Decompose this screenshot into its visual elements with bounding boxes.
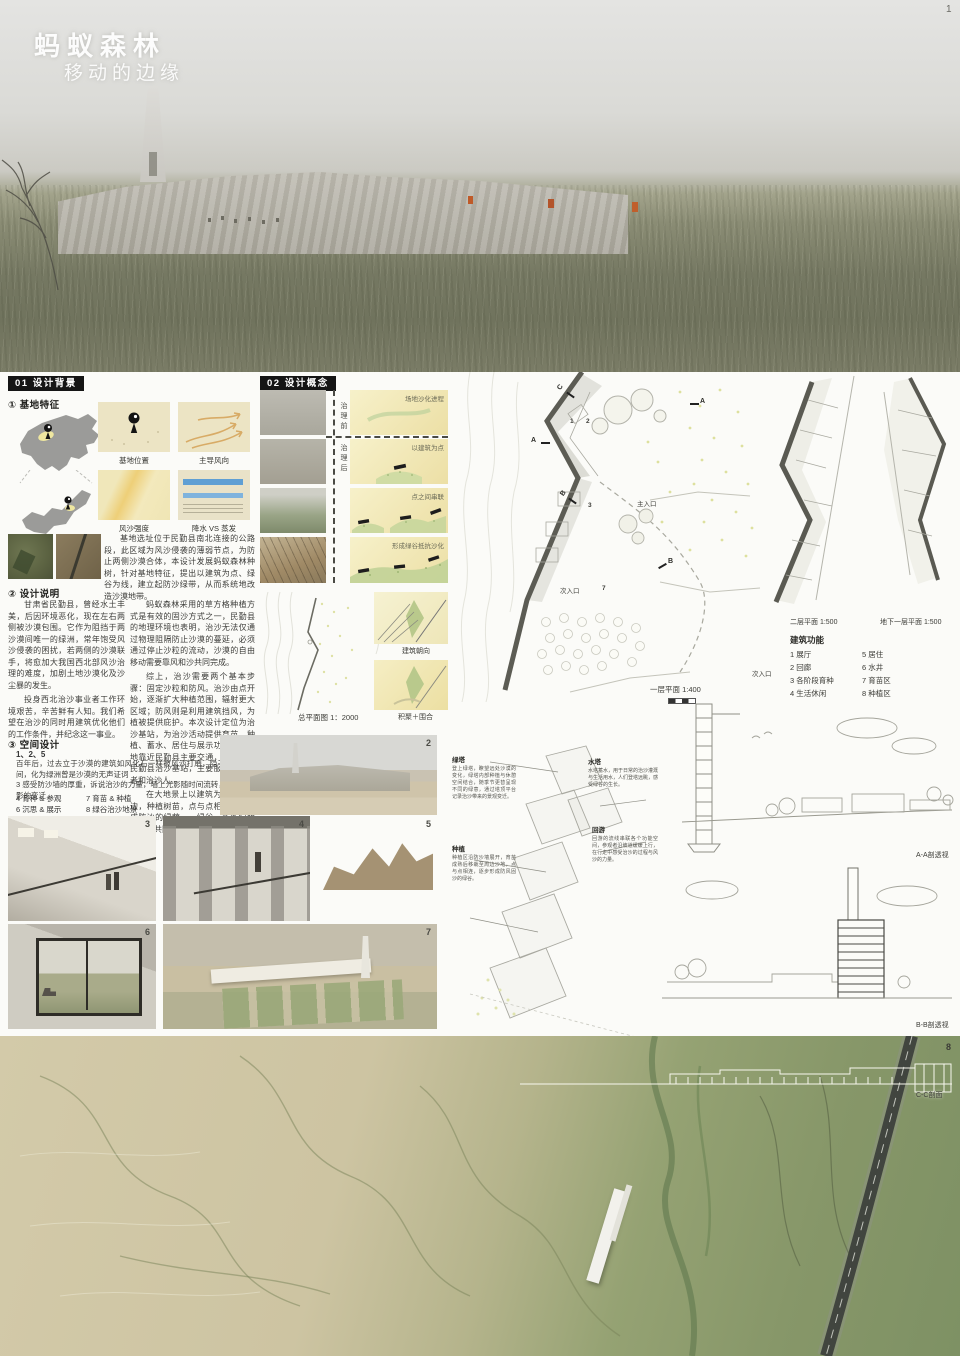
basement-caption: 地下一层平面 1:500 — [880, 617, 941, 627]
thumb-precip-evap — [178, 470, 250, 520]
chart-gridlines — [183, 504, 243, 516]
satellite-image — [8, 534, 53, 579]
orientation-diagram — [374, 592, 448, 644]
green-plots — [222, 979, 404, 1028]
china-map — [8, 408, 102, 476]
render-photo-3: 3 — [8, 816, 156, 921]
design-notes-left: 甘肃省民勤县，曾经水土丰美，后因环境恶化，现在左右两侧被沙漠包围。它作为阻挡于两… — [8, 599, 125, 743]
section-cut-mark — [541, 442, 550, 444]
section-marker-b2: B — [668, 558, 673, 565]
chart-bar-blue — [183, 493, 243, 498]
site-intro-paragraph: 基地选址位于民勤县南北连接的公路段，此区域为风沙侵袭的薄弱节点，为防止两侧沙漠合… — [104, 533, 255, 602]
notes-paragraph: 投身西北治沙事业者工作环境艰苦，辛苦鲜有人知。我们希望在治沙的同时用建筑优化他们… — [8, 694, 125, 740]
space-item: 8 绿谷治沙地景 — [86, 804, 137, 815]
page-number: 1 — [946, 4, 952, 15]
dune-ridges — [260, 537, 326, 583]
notes-paragraph: 蚂蚁森林采用的草方格种植方式是有效的固沙方式之一，民勤县的地理环境也表明，治沙无… — [130, 599, 255, 668]
photo-number: 7 — [426, 927, 431, 937]
render-photo-2: 2 — [220, 735, 437, 815]
function-item: 7 育苗区 — [862, 675, 891, 686]
enclosure-diagram — [374, 660, 448, 710]
axon-note-green-tower: 绿塔 登上绿塔，瞭望远处沙漠的变化，绿塔内部种植与休憩空间结合，随季节更替呈现不… — [452, 754, 516, 801]
concept-diagram-1: 场地沙化进程 — [350, 390, 448, 435]
master-plan-1-2000 — [260, 592, 390, 714]
before-after-divider — [333, 390, 335, 583]
section-header-02: 02 设计概念 — [260, 376, 336, 391]
concept-diagram-2: 以建筑为点 — [350, 439, 448, 484]
thumb-sand-intensity — [98, 470, 170, 520]
oasis-patch — [13, 550, 36, 575]
section-aa-label: A-A剖透视 — [916, 850, 949, 860]
axon-note-title: 种植 — [452, 843, 516, 853]
master-plan-caption: 总平面图 1：2000 — [298, 712, 358, 723]
photo-number: 2 — [426, 738, 431, 748]
roof-object — [468, 196, 473, 204]
space-item: 4 育种 & 参观 — [16, 793, 61, 804]
axon-note-text: 回游的流线串联各个功能空间，参观者沿坡道缓缓上行，在行走中感受治沙的过程与风沙的… — [592, 836, 658, 864]
section-header-01: 01 设计背景 — [8, 376, 84, 391]
enclosure-caption: 积聚＋围合 — [398, 712, 433, 722]
satellite-image — [56, 534, 101, 579]
aerial-tower — [361, 936, 370, 978]
presentation-board: 蚂蚁森林 移动的边缘 1 01 设计背景 ① 基地特征 — [0, 0, 960, 1356]
thumb-site-location — [98, 402, 170, 452]
building-window — [248, 217, 251, 221]
function-item: 1 展厅 — [790, 649, 811, 660]
thumb-wind-direction — [178, 402, 250, 452]
axon-note-title: 回游 — [592, 824, 658, 834]
diagram-caption: 点之间串联 — [412, 491, 445, 501]
building-window — [208, 218, 211, 222]
section-bb-label: B-B剖透视 — [916, 1020, 949, 1030]
first-floor-plan — [450, 372, 770, 702]
gallery-railing — [8, 852, 156, 897]
window-mullion — [86, 938, 88, 1010]
concept-diagram-4: 形成绿谷抵抗沙化 — [350, 537, 448, 583]
section-cut-mark — [690, 403, 699, 405]
axon-note-text: 种植区沿防沙墙展开，育苗成熟后移栽至周边沙地，点与点相连，逐步形成防风固沙的绿谷… — [452, 855, 516, 883]
photo-number: 5 — [426, 819, 431, 829]
axon-note-text: 登上绿塔，瞭望远处沙漠的变化，绿塔内部种植与休憩空间结合，随季节更替呈现不同的绿… — [452, 766, 516, 801]
roof-object — [632, 202, 638, 212]
building-window — [221, 216, 224, 220]
space-item: 7 育苗 & 种植 — [86, 793, 131, 804]
photo-number: 6 — [145, 927, 150, 937]
before-label: 治理前 — [338, 402, 348, 432]
photo-number: 8 — [946, 1042, 951, 1052]
plan-room-number: 3 — [588, 502, 592, 509]
section-cc-overlay — [520, 1044, 960, 1114]
building-window — [234, 219, 237, 223]
bare-tree — [0, 126, 76, 290]
axon-note-water-tower: 水塔 水塔蓄水，用于日常的治沙灌溉与生活用水，人们登塔远眺，感受绿谷的生长。 — [588, 756, 658, 789]
location-pin-icon — [98, 402, 170, 452]
chart-bar-blue — [183, 479, 243, 485]
building-window — [276, 218, 279, 222]
first-floor-caption: 一层平面 1:400 — [650, 684, 701, 695]
gallery-window — [44, 830, 58, 838]
river-line — [67, 534, 88, 579]
plan-room-number: 1 — [570, 418, 574, 425]
diagram-caption: 形成绿谷抵抗沙化 — [392, 540, 444, 550]
aerial-building-strip — [211, 958, 372, 983]
hero-render: 蚂蚁森林 移动的边缘 1 — [0, 0, 960, 372]
concept-photo-2 — [260, 439, 326, 484]
render-photo-7: 7 — [163, 924, 437, 1029]
people-silhouette — [255, 852, 261, 872]
axon-note-loop: 回游 回游的流线串联各个功能空间，参观者沿坡道缓缓上行，在行走中感受治沙的过程与… — [592, 824, 658, 864]
axon-note-title: 绿塔 — [452, 754, 516, 764]
plan-room-number: 2 — [586, 418, 590, 425]
heading-design-notes: ② 设计说明 — [8, 586, 60, 600]
concept-photo-1 — [260, 390, 326, 435]
bottom-aerial-render: C-C剖面 8 — [0, 1036, 960, 1356]
rock-formation — [323, 838, 433, 890]
function-item: 2 回廊 — [790, 662, 811, 673]
main-entrance-label: 主入口 — [637, 498, 657, 508]
function-item: 6 水井 — [862, 662, 883, 673]
gansu-map — [16, 482, 98, 540]
thumb-caption: 基地位置 — [98, 455, 170, 466]
concept-photo-4 — [260, 537, 326, 583]
axon-note-planting: 种植 种植区沿防沙墙展开，育苗成熟后移栽至周边沙地，点与点相连，逐步形成防风固沙… — [452, 843, 516, 883]
photo-number: 3 — [145, 819, 150, 829]
space-item: 6 沉思 & 展示 — [16, 804, 61, 815]
concept-dashed-separator — [326, 436, 448, 438]
window-view — [36, 938, 142, 1016]
building-window — [262, 220, 265, 224]
weathered-building — [250, 765, 410, 791]
people-silhouette — [106, 874, 111, 890]
section-aa-drawing — [652, 698, 958, 858]
plan-room-number: 7 — [602, 585, 606, 592]
functions-title: 建筑功能 — [790, 634, 824, 646]
concept-diagram-3: 点之间串联 — [350, 488, 448, 533]
tower-slot — [149, 152, 157, 176]
notes-paragraph: 甘肃省民勤县，曾经水土丰美，后因环境恶化，现在左右两侧被沙漠包围。它作为阻挡于两… — [8, 599, 125, 691]
photo-number: 4 — [299, 819, 304, 829]
thumb-caption: 主导风向 — [178, 455, 250, 466]
people-silhouette — [114, 872, 119, 890]
render-photo-6: 6 — [8, 924, 156, 1029]
site-intro-text: 基地选址位于民勤县南北连接的公路段，此区域为风沙侵袭的薄弱节点，为防止两侧沙漠合… — [104, 533, 255, 602]
board-subtitle: 移动的边缘 — [64, 58, 184, 85]
axon-note-title: 水塔 — [588, 756, 658, 766]
secondary-entrance-label: 次入口 — [560, 585, 580, 595]
diagram-caption: 以建筑为点 — [412, 442, 445, 452]
function-item: 3 各阶段育种 — [790, 675, 834, 686]
second-floor-caption: 二层平面 1:500 — [790, 617, 837, 627]
render-photo-4: 4 — [163, 816, 310, 921]
section-bb-drawing — [652, 862, 958, 1030]
axon-note-text: 水塔蓄水，用于日常的治沙灌溉与生活用水，人们登塔远眺，感受绿谷的生长。 — [588, 768, 658, 789]
section-marker-a: A — [531, 437, 536, 444]
section-marker-a2: A — [700, 398, 705, 405]
obelisk-tower — [292, 743, 299, 773]
diagram-caption: 场地沙化进程 — [405, 393, 444, 403]
orientation-caption: 建筑朝向 — [402, 646, 430, 656]
after-label: 治理后 — [338, 444, 348, 474]
section-cc-label: C-C剖面 — [916, 1090, 942, 1100]
wind-arrows-icon — [178, 402, 250, 452]
upper-plans — [752, 370, 960, 612]
concept-photo-3 — [260, 488, 326, 533]
function-item: 5 居住 — [862, 649, 883, 660]
render-photo-5: 5 — [315, 816, 437, 921]
colonnade-columns — [163, 826, 310, 921]
gallery-window — [18, 828, 34, 837]
roof-object — [548, 199, 554, 208]
secondary-entrance-label-2: 次入口 — [752, 668, 772, 678]
